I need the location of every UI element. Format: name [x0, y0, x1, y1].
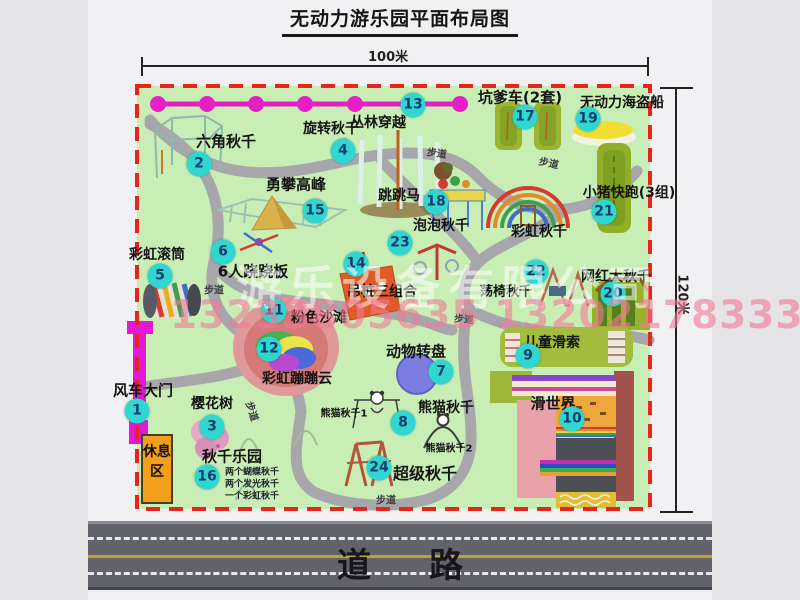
walkway-label-2: 步道 — [538, 153, 561, 172]
walkway-label-3: 步道 — [204, 282, 224, 297]
height-dimension-label: 120米 — [675, 274, 694, 314]
poi-label-16: 秋千乐园 — [202, 446, 262, 467]
poi-badge-9: 9 — [516, 344, 541, 369]
page-title-text: 无动力游乐园平面布局图 — [282, 4, 518, 37]
map-label-extra-0: 彩虹秋千 — [511, 221, 567, 241]
poi-label-24: 超级秋千 — [393, 460, 457, 484]
walkway-label-5: 步道 — [243, 399, 263, 423]
walkway-label-6: 步道 — [376, 492, 396, 507]
walkway-label-4: 步道 — [453, 310, 474, 327]
poi-label-8: 熊猫秋千 — [418, 397, 474, 417]
poi-badge-15: 15 — [303, 199, 328, 224]
poi-label-15: 勇攀高峰 — [266, 174, 326, 195]
poi-badge-21: 21 — [592, 200, 617, 225]
poi-badge-11: 11 — [262, 299, 287, 324]
poi-badge-19: 19 — [576, 107, 601, 132]
poi-badge-22: 22 — [524, 260, 549, 285]
poi-badge-23: 23 — [388, 231, 413, 256]
poi-label-18: 跳跳马 — [378, 185, 420, 205]
poi-badge-10: 10 — [560, 407, 585, 432]
width-dimension-label: 100米 — [368, 46, 408, 65]
poi-label-2: 六角秋千 — [196, 131, 256, 152]
poi-label-7: 动物转盘 — [386, 341, 446, 362]
poi-badge-24: 24 — [367, 456, 392, 481]
poi-badge-14: 14 — [344, 252, 369, 277]
poi-badge-16: 16 — [195, 465, 220, 490]
poi-badge-13: 13 — [401, 93, 426, 118]
poi-badge-18: 18 — [424, 190, 449, 215]
poi-badge-3: 3 — [200, 415, 225, 440]
rest-area-box: 休息区 — [141, 434, 173, 504]
poi-label-5: 彩虹滚筒 — [129, 244, 185, 264]
poi-badge-17: 17 — [513, 105, 538, 130]
page-title: 无动力游乐园平面布局图 — [0, 4, 800, 37]
poi-label-21: 小猪快跑(3组) — [583, 182, 676, 202]
poi-label-11: 粉色沙滩 — [291, 307, 347, 327]
poi-badge-6: 6 — [211, 240, 236, 265]
map-label-extra-1: 熊猫秋千1 — [321, 405, 368, 420]
poi-badge-5: 5 — [148, 264, 173, 289]
poi-badge-1: 1 — [125, 399, 150, 424]
poi-sublabel-16: 一个彩虹秋千 — [225, 489, 279, 502]
poi-badge-8: 8 — [391, 411, 416, 436]
map-label-extra-2: 熊猫秋千2 — [426, 440, 473, 455]
poi-badge-7: 7 — [429, 360, 454, 385]
poi-label-3: 樱花树 — [191, 393, 233, 413]
poi-label-12: 彩虹蹦蹦云 — [262, 368, 332, 388]
walkway-label-1: 步道 — [426, 143, 448, 161]
playground-map-screenshot: 无动力游乐园平面布局图 100米 120米 休息区 风车大门1六角秋千2樱花树3… — [0, 0, 800, 600]
poi-label-1: 风车大门 — [113, 380, 173, 401]
poi-badge-20: 20 — [601, 282, 626, 307]
poi-badge-2: 2 — [187, 152, 212, 177]
poi-badge-12: 12 — [257, 337, 282, 362]
poi-badge-4: 4 — [331, 139, 356, 164]
poi-label-22: 荡椅秋千 — [480, 281, 532, 300]
poi-label-6: 6人跷跷板 — [218, 261, 288, 282]
poi-label-13: 丛林穿越 — [350, 112, 406, 132]
poi-label-23: 泡泡秋千 — [413, 215, 469, 235]
poi-label-14: 吊桩三组合 — [347, 281, 417, 301]
